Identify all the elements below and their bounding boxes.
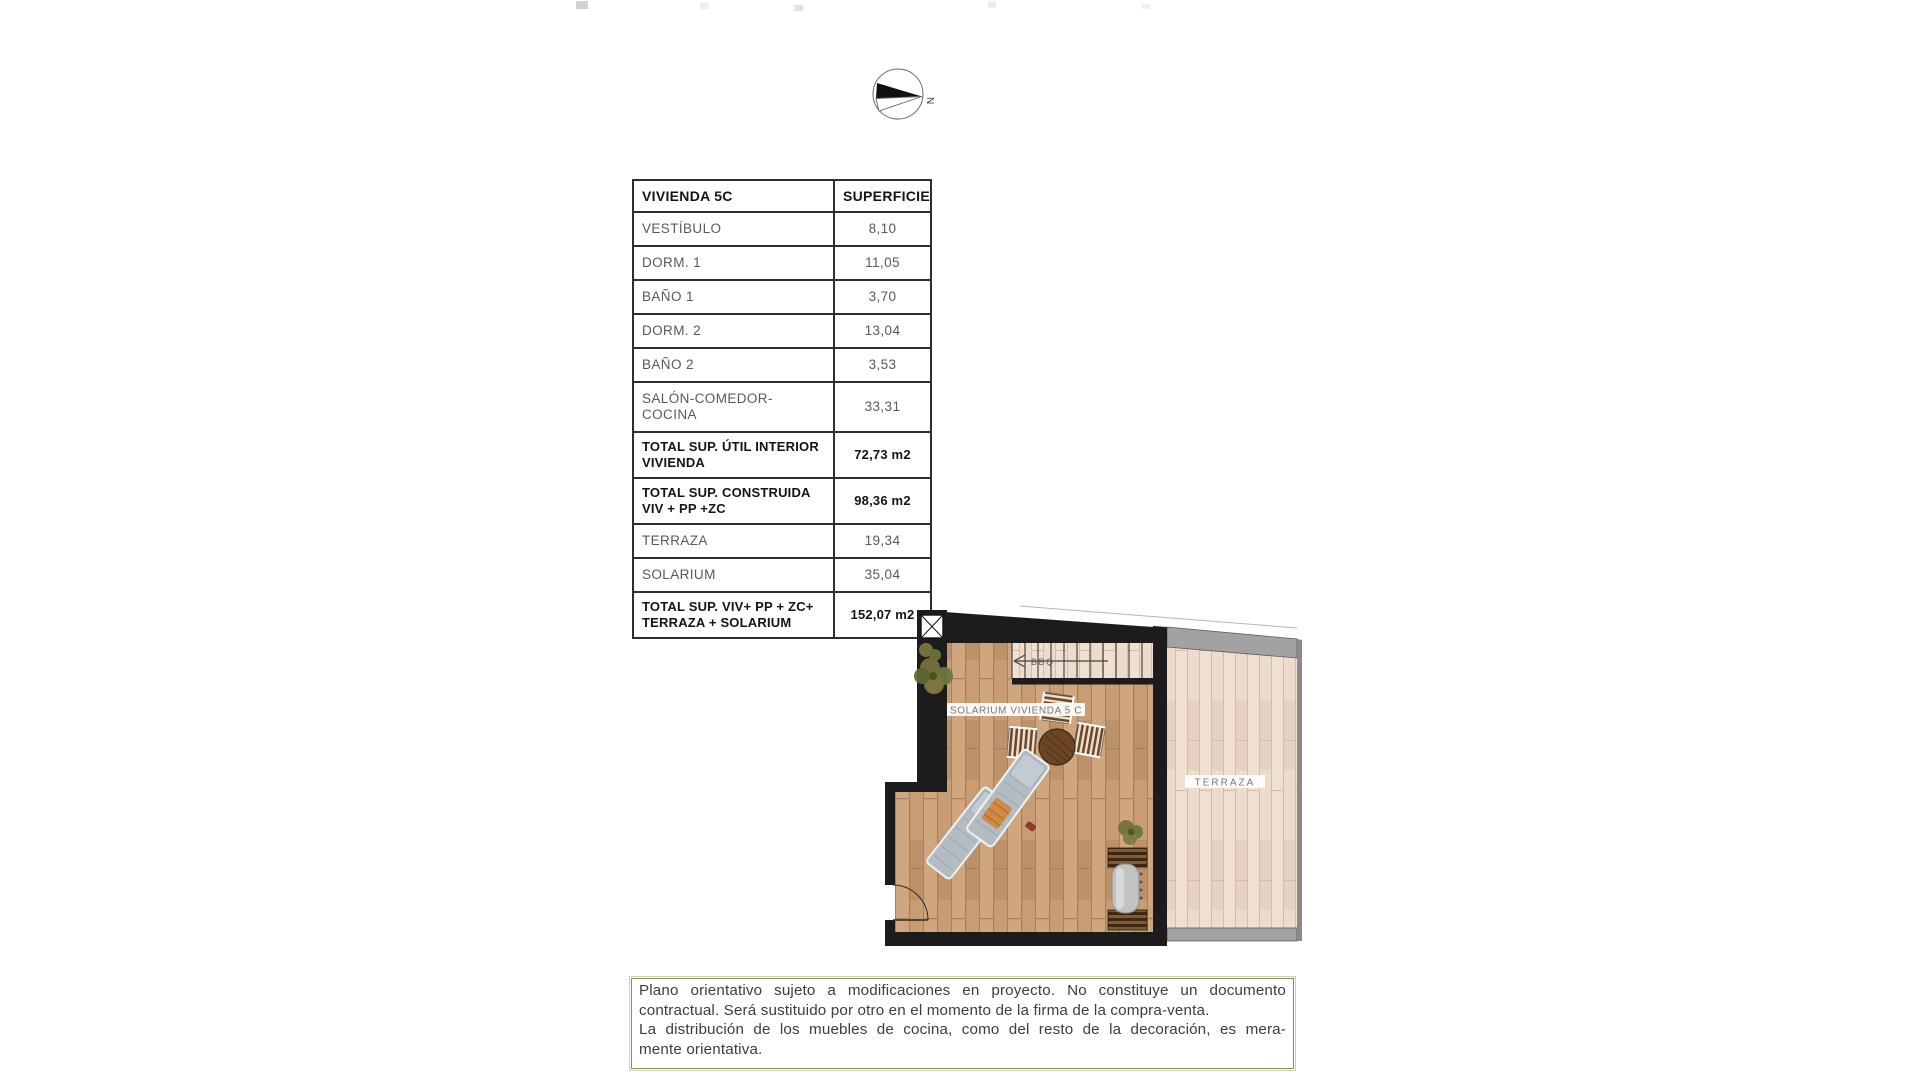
stairs: BBQ: [1012, 643, 1153, 685]
terraza-edge-right: [1297, 639, 1302, 941]
area-table-body: VESTÍBULO8,10DORM. 111,05BAÑO 13,70DORM.…: [633, 212, 931, 638]
svg-text:TERRAZA: TERRAZA: [1195, 778, 1256, 789]
area-value-cell: 8,10: [834, 212, 931, 246]
room-name-cell: DORM. 1: [633, 246, 834, 280]
area-value-cell: 3,53: [834, 348, 931, 382]
room-name-cell: TERRAZA: [633, 524, 834, 558]
area-table: VIVIENDA 5C SUPERFICIE VESTÍBULO8,10DORM…: [632, 179, 932, 639]
room-name-cell: VESTÍBULO: [633, 212, 834, 246]
skylight-icon: [921, 615, 943, 638]
area-value-cell: 33,31: [834, 382, 931, 432]
table-row: BAÑO 23,53: [633, 348, 931, 382]
room-name-cell: BAÑO 2: [633, 348, 834, 382]
top-edge-artifact: [576, 1, 588, 9]
table-row: SOLARIUM35,04: [633, 558, 931, 592]
dining-table-icon: [1039, 729, 1075, 765]
room-name-cell: TOTAL SUP. CONSTRUIDA VIV + PP +ZC: [633, 478, 834, 524]
area-value-cell: 35,04: [834, 558, 931, 592]
area-value-cell: 19,34: [834, 524, 931, 558]
top-edge-artifact: [700, 3, 709, 9]
room-name-cell: TOTAL SUP. VIV+ PP + ZC+ TERRAZA + SOLAR…: [633, 592, 834, 638]
page: { "compass": { "north_label": "N" }, "ta…: [0, 0, 1920, 1080]
disclaimer-line: mente orientativa.: [639, 1040, 1286, 1060]
chair-icon: [1073, 723, 1106, 757]
table-row: TOTAL SUP. ÚTIL INTERIOR VIVIENDA72,73 m…: [633, 432, 931, 478]
solarium-label: SOLARIUM VIVIENDA 5 C: [947, 703, 1085, 717]
area-value-cell: 72,73 m2: [834, 432, 931, 478]
disclaimer-line: La distribución de los muebles de cocina…: [639, 1020, 1286, 1040]
top-edge-artifact: [1142, 4, 1150, 9]
table-header-dwelling: VIVIENDA 5C: [633, 180, 834, 212]
room-name-cell: SALÓN-COMEDOR-COCINA: [633, 382, 834, 432]
area-value-cell: 13,04: [834, 314, 931, 348]
terraza-parapet-bottom: [1167, 928, 1297, 941]
disclaimer-box: Plano orientativo sujeto a modificacione…: [631, 978, 1294, 1069]
table-row: VESTÍBULO8,10: [633, 212, 931, 246]
room-name-cell: BAÑO 1: [633, 280, 834, 314]
table-row: BAÑO 13,70: [633, 280, 931, 314]
disclaimer-line: contractual. Será sustituido por otro en…: [639, 1001, 1286, 1021]
bbq-grill-icon: [1108, 848, 1147, 930]
area-value-cell: 3,70: [834, 280, 931, 314]
terraza-label: TERRAZA: [1185, 775, 1265, 789]
table-row: DORM. 213,04: [633, 314, 931, 348]
room-name-cell: SOLARIUM: [633, 558, 834, 592]
room-name-cell: DORM. 2: [633, 314, 834, 348]
area-value-cell: 11,05: [834, 246, 931, 280]
north-label: N: [924, 97, 935, 104]
svg-text:SOLARIUM VIVIENDA 5 C: SOLARIUM VIVIENDA 5 C: [950, 706, 1082, 717]
area-value-cell: 98,36 m2: [834, 478, 931, 524]
top-edge-artifact: [988, 2, 996, 8]
bbq-label: BBQ: [1031, 657, 1055, 667]
compass-icon: N: [858, 58, 944, 126]
table-row: TOTAL SUP. CONSTRUIDA VIV + PP +ZC98,36 …: [633, 478, 931, 524]
floor-plan: BBQ: [880, 596, 1307, 956]
table-header-surface: SUPERFICIE: [834, 180, 931, 212]
top-edge-artifact: [794, 5, 803, 11]
table-row: TERRAZA19,34: [633, 524, 931, 558]
table-header-row: VIVIENDA 5C SUPERFICIE: [633, 180, 931, 212]
disclaimer-line: Plano orientativo sujeto a modificacione…: [639, 981, 1286, 1001]
table-row: DORM. 111,05: [633, 246, 931, 280]
room-name-cell: TOTAL SUP. ÚTIL INTERIOR VIVIENDA: [633, 432, 834, 478]
table-row: SALÓN-COMEDOR-COCINA33,31: [633, 382, 931, 432]
